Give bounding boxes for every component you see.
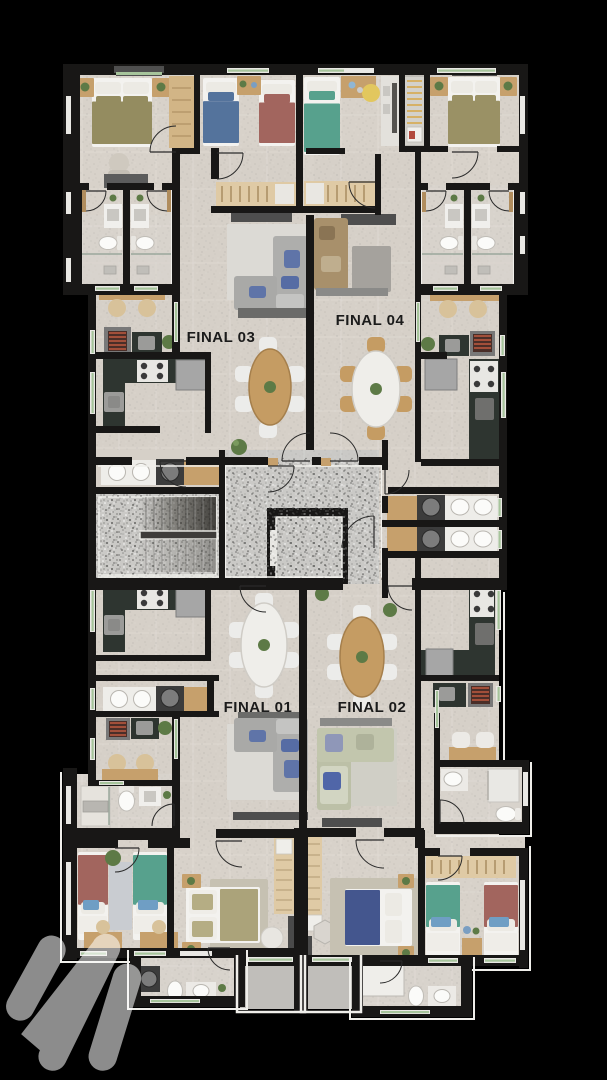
- svg-text:FINAL 02: FINAL 02: [338, 699, 407, 716]
- svg-text:FINAL 03: FINAL 03: [187, 329, 256, 346]
- svg-text:FINAL 04: FINAL 04: [336, 312, 405, 329]
- svg-text:FINAL 01: FINAL 01: [224, 699, 293, 716]
